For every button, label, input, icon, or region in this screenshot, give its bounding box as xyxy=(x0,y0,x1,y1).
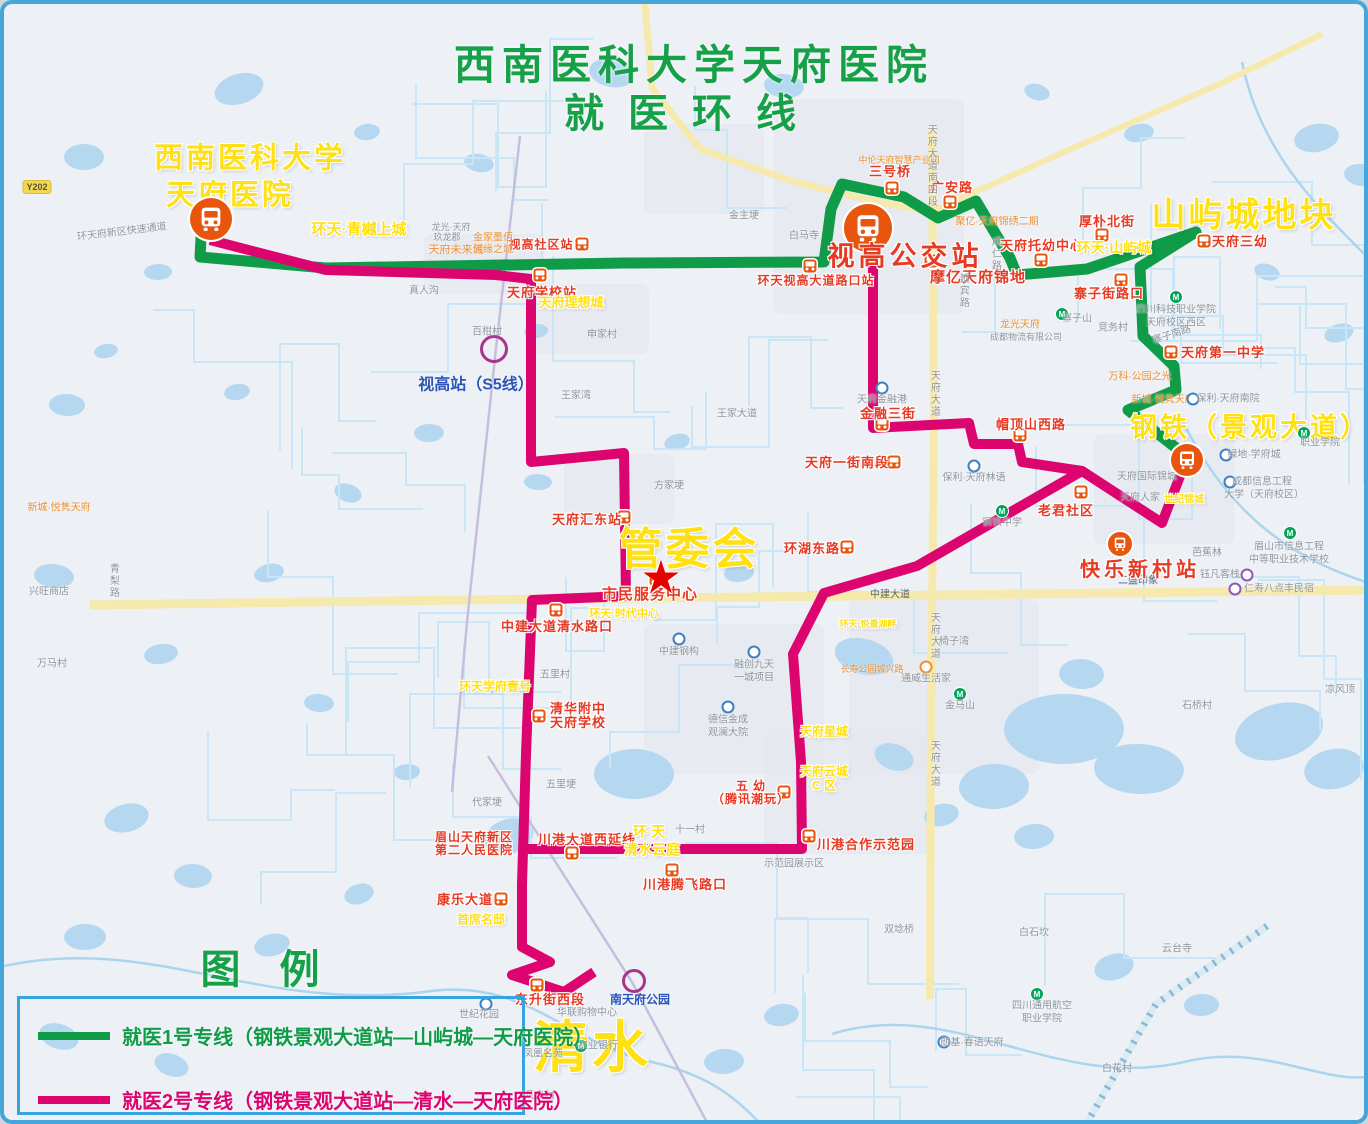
minor-label: 德信金成 xyxy=(708,716,748,727)
minor-label: 五里村 xyxy=(540,671,570,682)
road-label: 天府大道 xyxy=(928,370,939,418)
minor-label: 天府人家 xyxy=(1120,494,1160,505)
minor-label: 五里埂 xyxy=(546,781,576,792)
area-label: 天府星城 xyxy=(800,726,848,739)
minor-label: 方家埂 xyxy=(654,482,684,493)
area-label: 龙光天府 xyxy=(1000,321,1040,332)
minor-label: 竞务村 xyxy=(1098,324,1128,335)
line2-swatch xyxy=(38,1096,110,1104)
road-label: 延宾路 xyxy=(957,273,968,309)
minor-label: 芭蕉林 xyxy=(1192,549,1222,560)
bus-stop-label-三号桥: 三号桥 xyxy=(869,165,911,179)
minor-label: 双埝桥 xyxy=(884,926,914,937)
poi-metro-icon: M xyxy=(954,688,966,700)
poi-metro-icon: M xyxy=(1031,988,1043,1000)
minor-label: 职业学院 xyxy=(1022,1015,1062,1026)
terminal-label-视高公交站: 视高公交站 xyxy=(828,242,983,271)
poi-circle-icon xyxy=(1229,583,1242,596)
bus-stop-icon-康乐大道 xyxy=(495,893,508,906)
bus-stop-icon-清华附中天府学校 xyxy=(533,710,546,723)
area-label: 环天·悦景湖畔 xyxy=(840,620,897,630)
minor-label: 中等职业技术学校 xyxy=(1249,556,1329,567)
line1-label: 就医1号专线（钢铁景观大道站—山屿城—天府医院） xyxy=(122,1021,593,1050)
poi-circle-icon xyxy=(876,382,889,395)
minor-label: 兴旺商店 xyxy=(29,588,69,599)
road-label: 中建大道 xyxy=(870,591,910,602)
bus-stop-icon-天府三幼 xyxy=(1198,235,1211,248)
road-label: 天府大道南四段 xyxy=(925,124,936,208)
area-label: 佛缘之城 xyxy=(473,246,513,257)
minor-label: 通威生活家 xyxy=(901,675,951,686)
bus-stop-icon-天府学校站 xyxy=(534,269,547,282)
minor-label: 金马山 xyxy=(945,702,975,713)
bus-stop-label-川港大道西延线: 川港大道西延线 xyxy=(538,833,636,847)
line2-label: 就医2号专线（钢铁景观大道站—清水—天府医院） xyxy=(122,1085,573,1114)
bus-stop-icon-环天视高大道路口站 xyxy=(804,260,817,273)
minor-label: 天府国际锦城 xyxy=(1117,473,1177,484)
bus-stop-label-川港合作示范园: 川港合作示范园 xyxy=(817,838,915,852)
bus-stop-icon-东升街西段 xyxy=(531,979,544,992)
poi-metro-icon: M xyxy=(1170,291,1182,303)
area-label: 清水云庭 xyxy=(624,842,680,857)
minor-label: 观澜大院 xyxy=(708,729,748,740)
minor-label: 申家村 xyxy=(587,331,617,342)
minor-label: 白石坎 xyxy=(1019,929,1049,940)
poi-circle-icon xyxy=(673,633,686,646)
area-label: 环 天 xyxy=(633,824,665,839)
minor-label: 代家埂 xyxy=(472,799,502,810)
road-label: 环天府新区快速通道 xyxy=(77,222,168,244)
road-label: 青梨路 xyxy=(107,563,118,599)
bus-stop-label-金融三街: 金融三街 xyxy=(860,407,916,421)
terminal-label-快乐新村站: 快乐新村站 xyxy=(1080,560,1200,582)
legend: 就医1号专线（钢铁景观大道站—山屿城—天府医院） 就医2号专线（钢铁景观大道站—… xyxy=(17,996,525,1115)
poi-circle-icon xyxy=(968,460,981,473)
bus-stop-label-广安路: 广安路 xyxy=(931,181,973,195)
area-label: 环天·时代中心 xyxy=(589,609,659,621)
bus-stop-label-厚朴北街: 厚朴北街 xyxy=(1079,215,1135,229)
minor-label: 椅子湾 xyxy=(939,638,969,649)
minor-label: 钢铁中学 xyxy=(982,519,1022,530)
bus-stop-icon-寨子街路口 xyxy=(1115,274,1128,287)
hospital-name-line2: 天府医院 xyxy=(166,180,294,211)
minor-label: 金主埂 xyxy=(729,212,759,223)
hospital-name-line1: 西南医科大学 xyxy=(154,143,346,174)
legend-item-line1: 就医1号专线（钢铁景观大道站—山屿城—天府医院） xyxy=(20,1021,522,1050)
minor-label: 仁寿八点丰民宿 xyxy=(1244,585,1314,596)
road-label: 天府大道 xyxy=(928,740,939,788)
area-label: 环天·山屿城 xyxy=(1077,240,1152,255)
star-marker: ★ xyxy=(640,553,681,603)
minor-label: 云台寺 xyxy=(1162,945,1192,956)
minor-label: 天府金融港 xyxy=(857,396,907,407)
legend-item-line2: 就医2号专线（钢铁景观大道站—清水—天府医院） xyxy=(20,1085,522,1114)
bus-stop-label-天府三幼: 天府三幼 xyxy=(1212,235,1268,249)
bus-stop-label-中建大道清水路口: 中建大道清水路口 xyxy=(501,620,613,634)
area-label: 天府云城 xyxy=(800,766,848,779)
bus-stop-icon-三号桥 xyxy=(886,182,899,195)
minor-label: 保利·天府南院 xyxy=(1196,395,1259,406)
bus-stop-label-帽顶山西路: 帽顶山西路 xyxy=(996,418,1066,432)
rail-station-circle xyxy=(480,335,508,363)
map-subtitle: 就医环线 xyxy=(564,81,820,139)
poi-circle-icon xyxy=(1241,569,1254,582)
terminal-bus-icon-快乐新村站 xyxy=(1108,532,1132,556)
line1-swatch xyxy=(38,1032,110,1040)
minor-label: 百柑村 xyxy=(472,328,502,339)
minor-label: 真人沟 xyxy=(409,287,439,298)
bus-stop-icon-天府一街南段 xyxy=(888,456,901,469)
terminal-bus-icon-钢铁景观大道站 xyxy=(1171,444,1203,476)
bus-stop-icon-老君社区 xyxy=(1075,486,1088,499)
bus-stop-label-环湖东路: 环湖东路 xyxy=(784,542,840,556)
minor-label: 绿地·学府城 xyxy=(1227,451,1280,462)
bus-stop-label-line: 清华附中 xyxy=(550,702,606,716)
area-label: 环天学府壹号 xyxy=(459,681,531,694)
area-label: 金家墨佰 xyxy=(473,234,513,245)
minor-label: 万马村 xyxy=(37,660,67,671)
road-label: 天府大道 xyxy=(928,612,939,660)
legend-title: 图 例 xyxy=(200,937,333,995)
bus-stop-label-天府汇东站: 天府汇东站 xyxy=(552,513,622,527)
minor-label: 朗基·春语天府 xyxy=(940,1039,1003,1050)
minor-label: 王家大道 xyxy=(717,410,757,421)
minor-label: 成都信息工程 xyxy=(1232,478,1292,489)
bus-stop-icon-川港合作示范园 xyxy=(803,830,816,843)
minor-label: 凉风顶 xyxy=(1325,686,1355,697)
bus-stop-label-line: （腾讯潮玩） xyxy=(712,793,790,806)
minor-label: 凤凰名苑 xyxy=(523,1050,563,1061)
bus-stop-label-眉山天府新区第二人民医院: 眉山天府新区第二人民医院 xyxy=(435,831,513,857)
terminal-bus-icon-天府医院站 xyxy=(190,198,232,240)
bus-stop-label-川港腾飞路口: 川港腾飞路口 xyxy=(643,878,727,892)
minor-label: 保利·天府林语 xyxy=(942,474,1005,485)
bus-stop-label-视高社区站: 视高社区站 xyxy=(508,239,573,252)
minor-label: 大学（天府校区） xyxy=(1224,491,1304,502)
road-label: 成仁路 xyxy=(989,236,1000,272)
shanyucheng-area: 山屿城地块 xyxy=(1152,198,1337,235)
area-label: 新城·悦隽天府 xyxy=(1131,396,1194,407)
area-label: 聚亿·天府锦绣二期 xyxy=(955,218,1038,229)
rail-station-label: 视高站（S5线） xyxy=(418,376,534,393)
minor-label: 十一村 xyxy=(675,826,705,837)
rail-station-label: 南天府公园 xyxy=(610,994,670,1007)
area-label: 新城·悦隽天府 xyxy=(27,504,90,515)
bus-stop-icon-川港大道西延线 xyxy=(566,847,579,860)
bus-stop-label-东升街西段: 东升街西段 xyxy=(515,993,585,1007)
minor-label: 白马寺 xyxy=(789,232,819,243)
poi-circle-icon xyxy=(920,661,933,674)
bus-stop-label-line: 天府学校 xyxy=(550,716,606,730)
minor-label: 一城项目 xyxy=(734,674,774,685)
poi-circle-icon xyxy=(748,646,761,659)
transit-map: 西南医科大学天府医院 就医环线 图 例 就医1号专线（钢铁景观大道站—山屿城—天… xyxy=(0,0,1368,1124)
area-label: 成都物流有限公司 xyxy=(990,333,1062,343)
bus-stop-icon-天府第一中学 xyxy=(1165,346,1178,359)
bus-stop-label-line: 眉山天府新区 xyxy=(435,831,513,844)
minor-label: 四川通用航空 xyxy=(1012,1002,1072,1013)
bus-stop-label-环天视高大道路口站: 环天视高大道路口站 xyxy=(757,275,874,288)
minor-label: 眉山市信息工程 xyxy=(1254,543,1324,554)
bus-stop-label-老君社区: 老君社区 xyxy=(1038,504,1094,518)
area-label: 环天·青樾上城 xyxy=(312,222,407,238)
bus-stop-label-天府一街南段: 天府一街南段 xyxy=(805,456,889,470)
area-label: 世纪锦城 xyxy=(1164,496,1204,507)
minor-label: 王家湾 xyxy=(561,392,591,403)
bus-stop-label-line: 五 幼 xyxy=(712,780,790,793)
bus-stop-icon-川港腾飞路口 xyxy=(666,864,679,877)
map-labels-layer: 西南医科大学天府医院 就医环线 图 例 就医1号专线（钢铁景观大道站—山屿城—天… xyxy=(4,4,1364,1120)
bus-stop-label-清华附中天府学校: 清华附中天府学校 xyxy=(550,702,606,730)
bus-stop-label-天府托幼中心: 天府托幼中心 xyxy=(1000,239,1084,253)
bus-stop-icon-广安路 xyxy=(944,196,957,209)
bus-stop-label-寨子街路口: 寨子街路口 xyxy=(1074,287,1144,301)
road-badge: Y202 xyxy=(22,180,51,194)
minor-label: 华联购物中心 xyxy=(557,1009,617,1020)
bus-stop-icon-视高社区站 xyxy=(576,238,589,251)
minor-label: 示范园展示区 xyxy=(764,860,824,871)
area-label: 首席名邸 xyxy=(457,914,505,927)
bus-stop-icon-中建大道清水路口 xyxy=(550,604,563,617)
minor-label: 钰凡客栈 xyxy=(1200,571,1240,582)
area-label: C 区 xyxy=(812,780,836,793)
minor-label: 石桥村 xyxy=(1182,702,1212,713)
bus-stop-label-摩亿天府锦地: 摩亿天府锦地 xyxy=(930,270,1026,286)
poi-circle-icon xyxy=(722,701,735,714)
bus-stop-label-康乐大道: 康乐大道 xyxy=(437,893,493,907)
area-label: 万科·公园之光 xyxy=(1108,373,1171,384)
area-label: 玖龙郡 xyxy=(433,233,460,243)
bus-stop-label-line: 第二人民医院 xyxy=(435,844,513,857)
bus-stop-icon-环湖东路 xyxy=(841,541,854,554)
area-label: 天府理想城 xyxy=(538,296,603,310)
minor-label: 寨子山 xyxy=(1062,315,1092,326)
minor-label: 四川科技职业学院 xyxy=(1136,306,1216,317)
minor-label: 白花村 xyxy=(1102,1065,1132,1076)
bus-stop-icon-天府托幼中心 xyxy=(1035,254,1048,267)
poi-metro-icon: M xyxy=(1284,527,1296,539)
area-label: 长寿公园城兴路 xyxy=(840,665,903,675)
minor-label: 中建钢构 xyxy=(659,648,699,659)
minor-label: 融创九天 xyxy=(734,661,774,672)
minor-label: 职业学院 xyxy=(1300,439,1340,450)
rail-station-circle xyxy=(622,969,646,993)
poi-metro-icon: M xyxy=(996,505,1008,517)
bus-stop-label-天府第一中学: 天府第一中学 xyxy=(1181,346,1265,360)
bus-stop-label-五幼（腾讯潮玩）: 五 幼（腾讯潮玩） xyxy=(712,780,790,806)
